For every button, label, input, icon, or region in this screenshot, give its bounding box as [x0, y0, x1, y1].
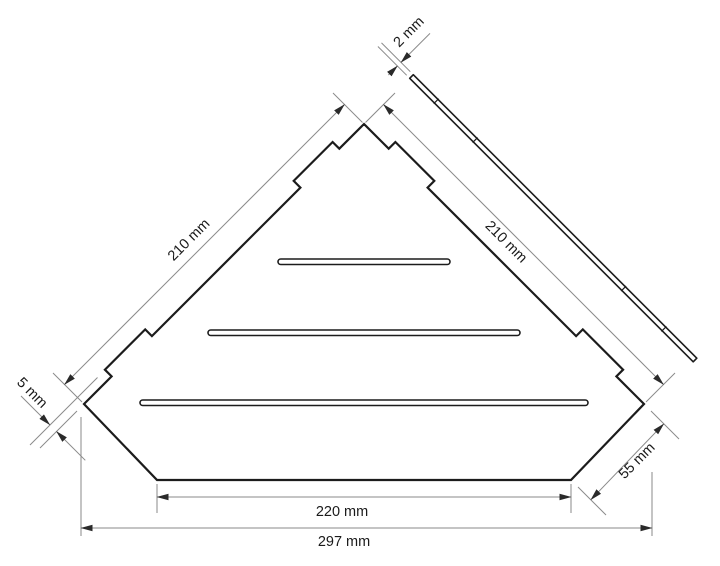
drain-slot-bottom: [140, 400, 588, 406]
technical-drawing: 210 mm 210 mm 2 mm 5 mm 55 mm 220 mm: [0, 0, 720, 566]
drawing-canvas: 210 mm 210 mm 2 mm 5 mm 55 mm 220 mm: [0, 0, 720, 566]
extension-line: [366, 93, 396, 123]
side-profile-bar: [410, 75, 697, 362]
dim-overall-width: 297 mm: [81, 417, 652, 550]
dim-inner-width: 220 mm: [157, 484, 571, 520]
dim-label-thickness: 2 mm: [391, 14, 428, 51]
extension-line: [646, 373, 675, 402]
dimension-line: [384, 105, 664, 385]
side-profile-plate: [410, 75, 697, 362]
extension-line: [30, 378, 98, 446]
dim-step: 5 mm: [13, 375, 97, 461]
dim-chamfer: 55 mm: [578, 411, 679, 515]
drain-slot-top: [278, 259, 450, 265]
drain-slot-middle: [208, 330, 520, 336]
dimension-leader: [388, 66, 397, 75]
dim-label-step: 5 mm: [13, 375, 50, 412]
dim-label-inner-width: 220 mm: [316, 504, 368, 520]
extension-line: [333, 93, 363, 123]
dim-right-edge: 210 mm: [366, 93, 676, 402]
dim-label-left-edge: 210 mm: [165, 216, 213, 264]
shelf-outline: [84, 124, 644, 480]
dim-label-overall-width: 297 mm: [318, 534, 370, 550]
dim-left-edge: 210 mm: [53, 93, 363, 402]
extension-line: [651, 411, 679, 439]
extension-line: [578, 487, 606, 515]
dim-label-right-edge: 210 mm: [482, 218, 530, 266]
dimension-line: [65, 105, 345, 385]
dim-thickness: 2 mm: [378, 14, 430, 76]
